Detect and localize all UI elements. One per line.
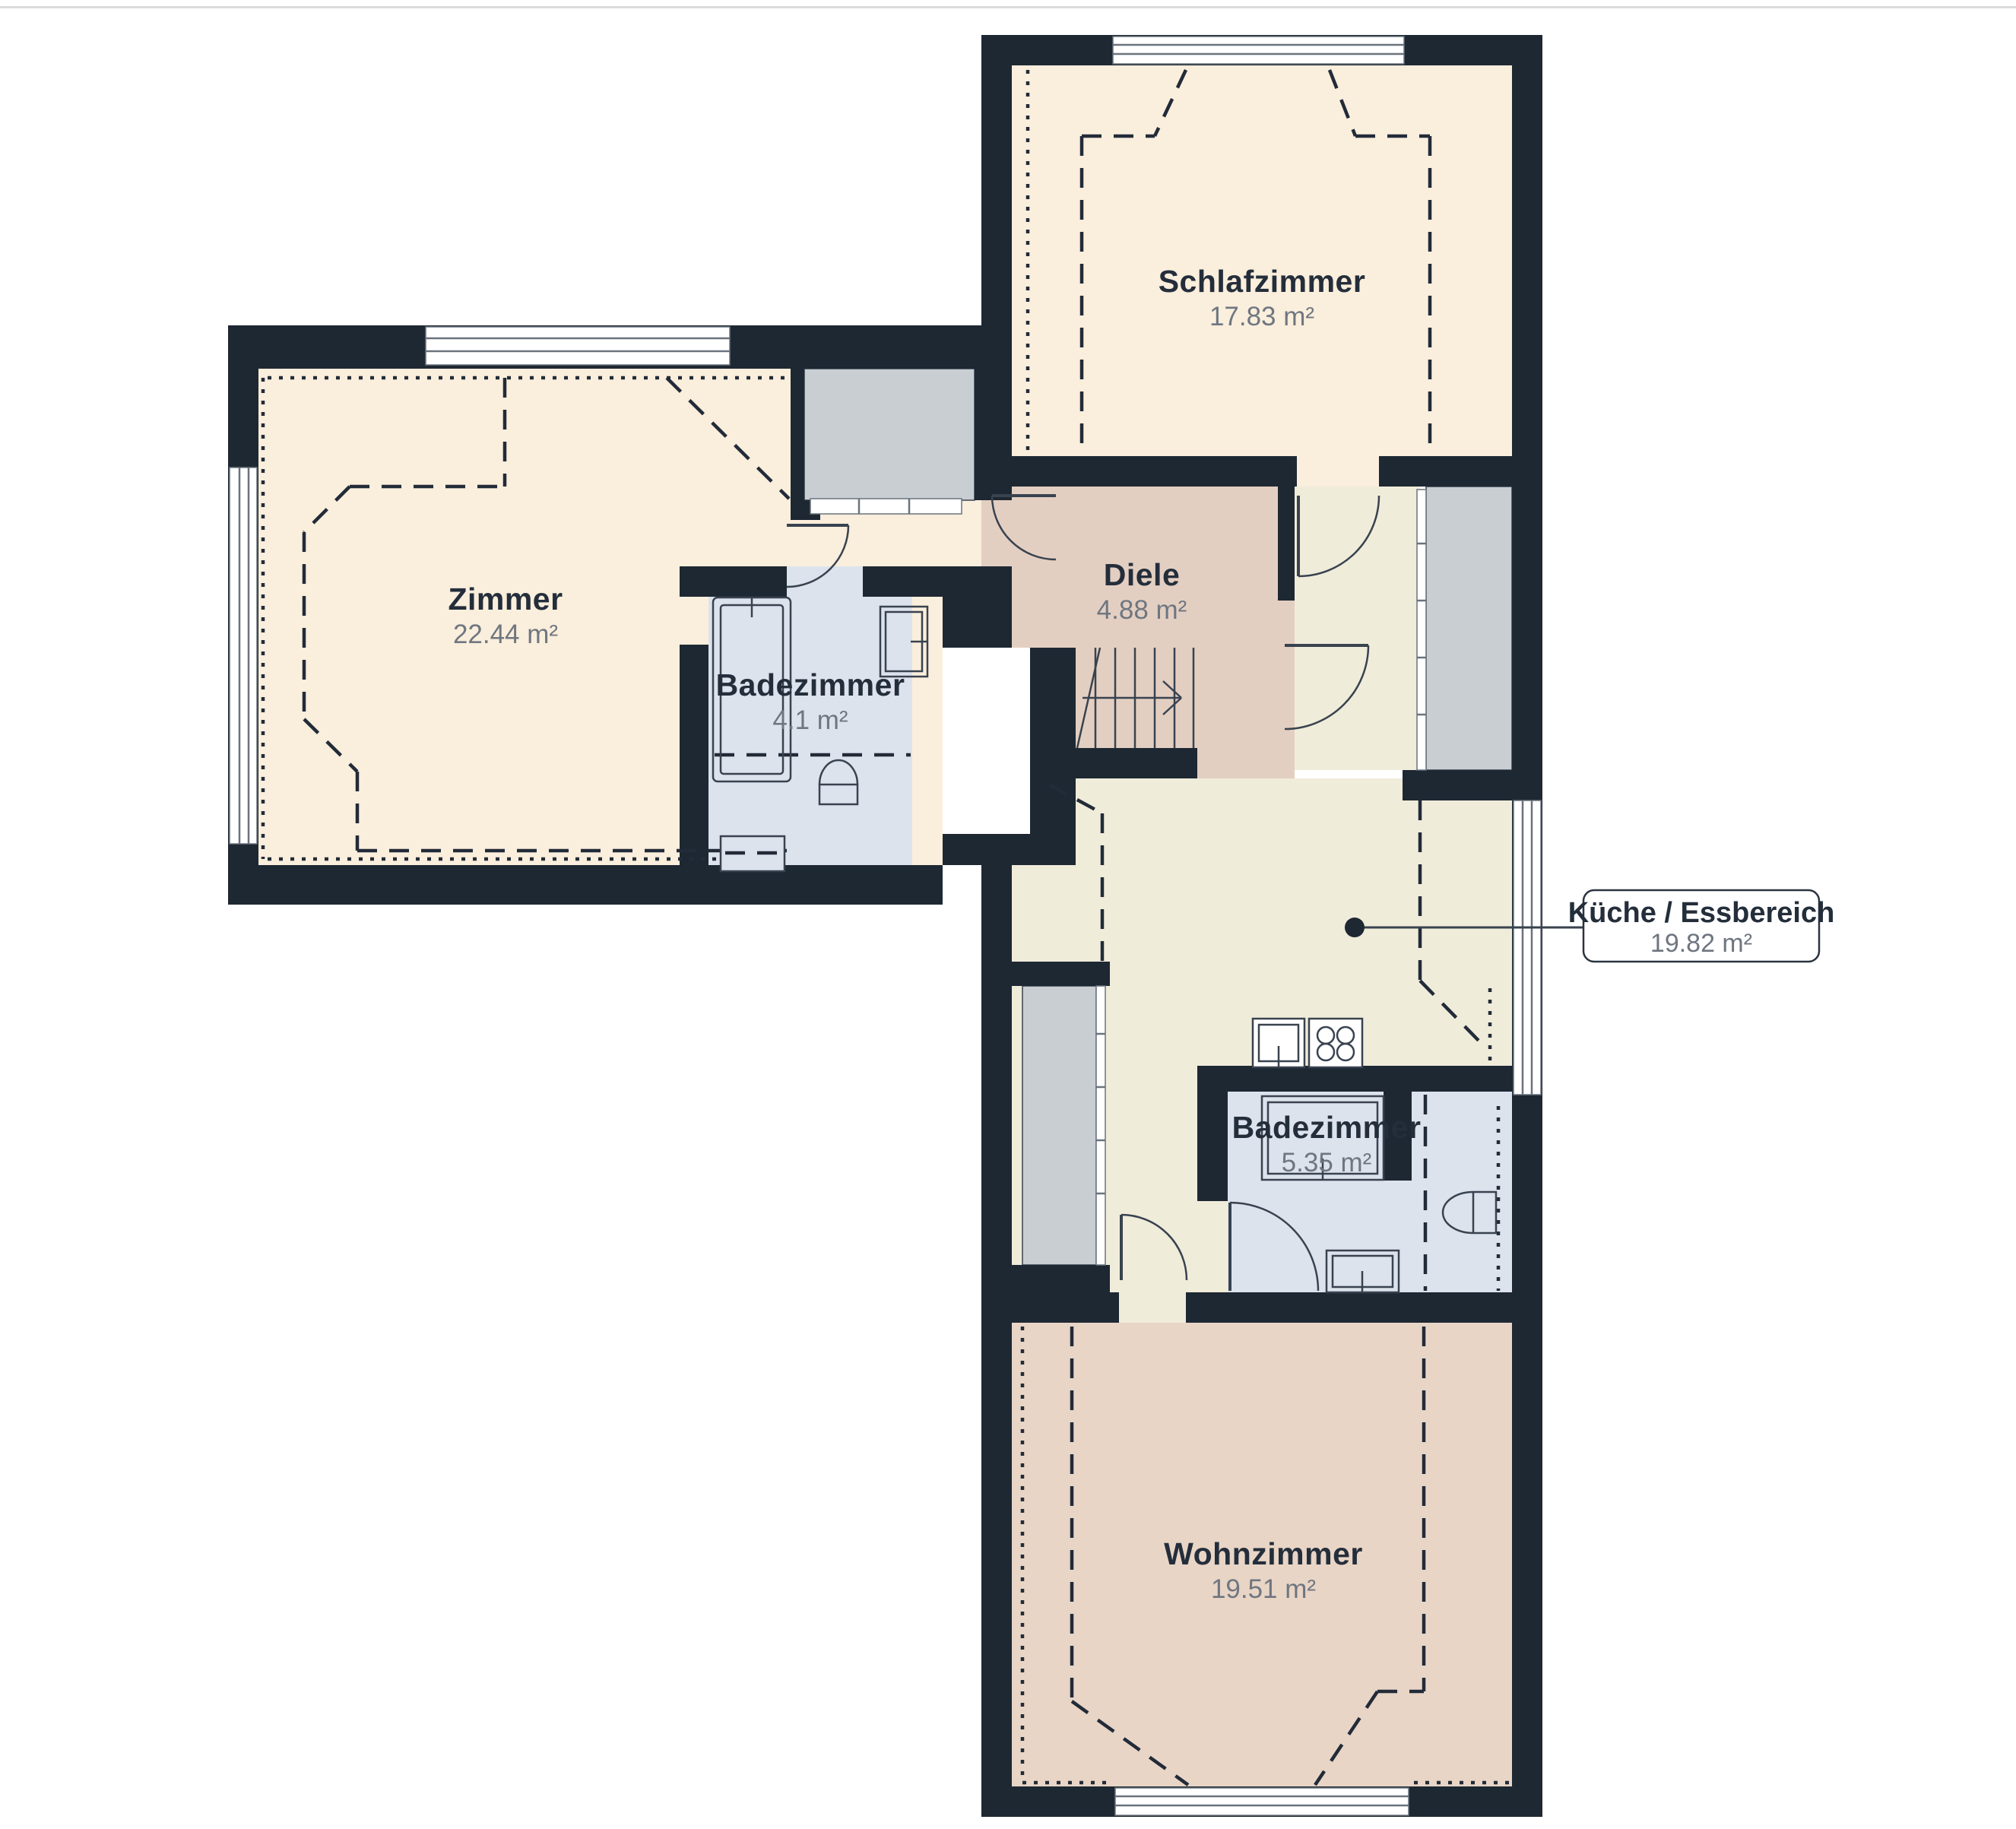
loggia-zone-east (1426, 487, 1512, 770)
window-zimmer-top (426, 327, 730, 365)
window-zimmer-left (230, 468, 257, 844)
room-area-wohnzimmer: 19.51 m² (1211, 1574, 1316, 1604)
room-area-bad-klein: 4.1 m² (772, 705, 848, 735)
room-label-diele: Diele (1104, 557, 1181, 592)
window-kueche-right (1514, 800, 1541, 1095)
room-area-schlafzimmer: 17.83 m² (1209, 302, 1314, 331)
glass-partition-loggia-west (1096, 986, 1105, 1265)
doorway-wohnzimmer-floor (1119, 1292, 1186, 1323)
callout-room-area: 19.82 m² (1650, 929, 1752, 958)
stair-void (943, 648, 1030, 834)
glass-partition-loggia-east (1417, 490, 1426, 770)
doorway-bad-gross-floor (1197, 1201, 1228, 1292)
storage-zone (804, 369, 975, 500)
doorway-diele-west-floor (981, 494, 1012, 566)
loggia-zone-west (1022, 986, 1096, 1265)
niche-icon-bad-klein (721, 836, 785, 871)
callout-anchor-dot (1345, 918, 1365, 937)
room-area-diele: 4.88 m² (1097, 595, 1187, 625)
room-label-wohnzimmer: Wohnzimmer (1164, 1536, 1363, 1571)
floor-plan-page: Schlafzimmer 17.83 m² Zimmer 22.44 m² Di… (0, 0, 2016, 1829)
room-fills (258, 65, 1512, 1786)
window-schlafzimmer-top (1113, 36, 1404, 64)
room-label-zimmer: Zimmer (448, 582, 563, 617)
window-wohnzimmer-bottom (1115, 1788, 1409, 1815)
stove-icon (1309, 1019, 1362, 1067)
room-label-bad-gross: Badezimmer (1232, 1110, 1422, 1145)
kitchen-sink-icon (1253, 1019, 1304, 1067)
glass-partition-storage (810, 499, 962, 514)
room-area-zimmer: 22.44 m² (453, 620, 558, 649)
page-divider (0, 6, 2016, 8)
floor-plan-svg: Schlafzimmer 17.83 m² Zimmer 22.44 m² Di… (0, 0, 2016, 1829)
callout-room-name: Küche / Essbereich (1568, 897, 1835, 929)
room-area-bad-gross: 5.35 m² (1282, 1148, 1372, 1178)
room-label-schlafzimmer: Schlafzimmer (1159, 264, 1366, 299)
room-label-bad-klein: Badezimmer (716, 667, 905, 702)
room-kueche-floor-upper (1295, 487, 1420, 770)
